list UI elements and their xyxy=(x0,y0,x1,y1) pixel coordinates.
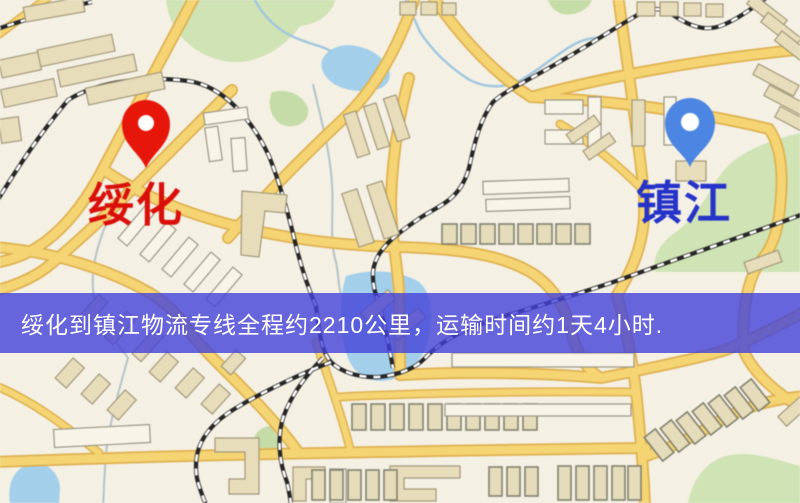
route-info-text: 绥化到镇江物流专线全程约2210公里，运输时间约1天4小时. xyxy=(21,306,663,340)
map-canvas: 绥化 镇江 xyxy=(0,0,800,503)
route-info-banner: 绥化到镇江物流专线全程约2210公里，运输时间约1天4小时. xyxy=(0,293,800,353)
destination-city-label: 镇江 xyxy=(636,178,732,229)
map-screenshot: 绥化 镇江 绥化到镇江物流专线全程约2210公里，运输时间约1天4小时. xyxy=(0,0,800,503)
origin-city-label: 绥化 xyxy=(88,180,184,231)
